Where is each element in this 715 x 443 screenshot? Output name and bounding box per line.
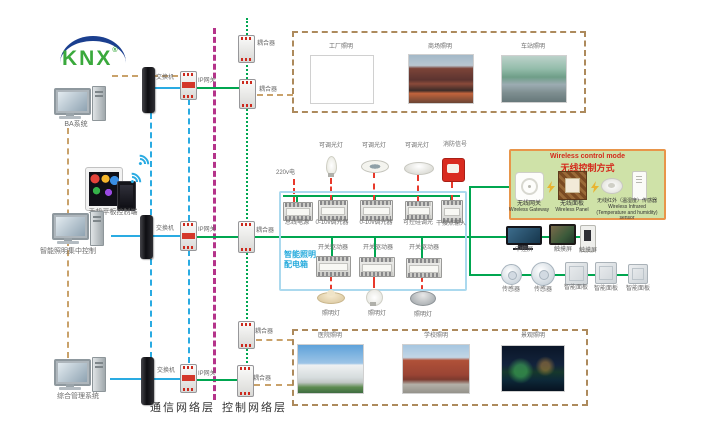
- device-label: 开关驱动器: [315, 245, 351, 251]
- touch-screen-label: 触摸屏: [549, 247, 577, 253]
- coupler-icon: [237, 365, 254, 397]
- coupler-icon: [238, 321, 255, 349]
- tan-link-to-bottom-apps-1: [256, 339, 293, 341]
- device-label: 干接点输入: [433, 221, 469, 227]
- wireless-panel-icon: [558, 171, 587, 200]
- bus-power-module-icon: [283, 202, 313, 221]
- lamp-label: 照明灯: [318, 311, 344, 317]
- dimmer-module-icon: [318, 200, 348, 221]
- wireless-sensor-wall-icon: [632, 171, 647, 200]
- pc-tower-icon: [92, 86, 106, 121]
- pc-tower-icon: [90, 211, 104, 246]
- smart-panel-label: 智能面板: [623, 286, 653, 292]
- device-label: 可控硅调光: [399, 220, 437, 226]
- switch-actuator-icon: [316, 256, 351, 277]
- landscape-photo: [501, 345, 565, 392]
- coupler-icon: [238, 221, 255, 253]
- school-photo: [402, 344, 470, 394]
- green-bus-top-row: [196, 87, 240, 89]
- knx-lighting-system-diagram: KNX® BA系统 手机平板控制端 智能照明集中控制 综合管理系统 交换机 交换…: [0, 0, 715, 443]
- green-bus-bottom-row: [196, 379, 239, 381]
- touch-screen-label: 触摸屏: [574, 248, 602, 254]
- app-label: 医院照明: [298, 333, 362, 339]
- smart-panel-icon: [595, 262, 617, 284]
- factory-photo: [310, 55, 374, 104]
- lamp-label: 照明灯: [364, 311, 390, 317]
- switch-actuator-icon: [406, 258, 442, 278]
- dimmable-downlight-icon: [361, 160, 389, 173]
- fire-alarm-icon: [442, 158, 465, 182]
- lightning-icon: [590, 181, 600, 193]
- ethernet-switch-icon: [140, 215, 153, 259]
- wireless-panel-label: 无线面板Wireless Panel: [551, 201, 593, 214]
- ip-gateway-icon: [180, 364, 197, 393]
- green-riser-right: [469, 186, 471, 276]
- wireless-gateway-icon: [515, 172, 544, 201]
- tan-link-to-top-apps: [257, 94, 293, 96]
- tan-link-to-bottom-apps-2: [254, 384, 293, 386]
- ip-gateway-label: IP网关: [198, 78, 216, 84]
- coupler-icon: [238, 35, 255, 63]
- device-label: 0-10v调光器: [311, 220, 353, 226]
- green-branch-wireless: [469, 186, 512, 188]
- station-photo: [501, 55, 567, 103]
- ethernet-switch-icon: [141, 357, 154, 405]
- lightning-icon: [546, 181, 556, 193]
- app-label: 工厂照明: [310, 44, 372, 50]
- coupler-label: 耦合器: [255, 329, 273, 335]
- wireless-gateway-label: 无线网关Wireless Gateway: [508, 201, 550, 214]
- metal-lamp-icon: [410, 291, 436, 306]
- smart-panel-label: 智能面板: [591, 286, 621, 292]
- central-screen-icon: [506, 226, 542, 245]
- dimmer-module-icon: [360, 200, 393, 221]
- monitor-icon: [54, 88, 91, 115]
- monitor-icon: [54, 359, 91, 386]
- device-label: 开关驱动器: [360, 245, 396, 251]
- load-label: 可调光灯: [402, 143, 432, 149]
- coupler-label: 耦合器: [256, 228, 274, 234]
- app-label: 景观照明: [503, 333, 563, 339]
- pc1-label: BA系统: [46, 121, 106, 128]
- coupler-label: 耦合器: [253, 376, 271, 382]
- wireless-title-en: Wireless control mode: [511, 153, 664, 160]
- blue-switch-link-lower: [150, 259, 152, 358]
- dimmable-ceiling-lamp-icon: [404, 162, 434, 175]
- blue-link-top-row: [155, 87, 182, 89]
- distribution-box-label: 智能照明配电箱: [284, 250, 316, 269]
- ip-gateway-label: IP网关: [198, 227, 216, 233]
- registered-mark-icon: ®: [112, 47, 119, 54]
- switch-label: 交换机: [156, 226, 174, 232]
- hospital-photo: [297, 344, 364, 394]
- wireless-sensor-label: 无线红外（温湿度）传感器Wireless Infrared (Temperatu…: [594, 199, 660, 222]
- pc2-label: 智能照明集中控制: [23, 248, 113, 255]
- switch-actuator-icon: [359, 257, 395, 277]
- power-input-label: 220v电: [276, 170, 295, 176]
- knx-logo-text: KNX®: [62, 47, 120, 71]
- smart-panel-icon: [565, 262, 588, 285]
- switch-label: 交换机: [156, 75, 174, 81]
- sensor-label: 传感器: [531, 287, 555, 293]
- thyristor-dimmer-icon: [405, 201, 433, 220]
- communication-layer-label: 通信网络层: [150, 399, 215, 415]
- control-layer-label: 控制网络层: [222, 399, 287, 415]
- app-label: 学校照明: [404, 333, 468, 339]
- blue-gateway-link-lower: [188, 250, 190, 363]
- ip-gateway-label: IP网关: [198, 371, 216, 377]
- app-label: 车站照明: [502, 44, 564, 50]
- fire-signal-label: 消防信号: [441, 142, 469, 148]
- monitor-icon: [52, 213, 89, 240]
- sensor-label: 传感器: [499, 287, 523, 293]
- pc-tower-icon: [92, 357, 106, 392]
- wireless-sensor-dome-icon: [601, 178, 623, 194]
- ethernet-switch-icon: [142, 67, 155, 113]
- coupler-label: 耦合器: [259, 87, 277, 93]
- smart-panel-icon: [628, 264, 648, 284]
- switch-label: 交换机: [157, 368, 175, 374]
- load-label: 可调光灯: [317, 143, 345, 149]
- sensor-icon: [531, 262, 555, 286]
- ip-gateway-icon: [180, 221, 197, 251]
- mall-photo: [408, 54, 474, 104]
- coupler-icon: [239, 79, 256, 109]
- app-label: 商场照明: [409, 44, 471, 50]
- central-screen-label: 中控屏: [509, 247, 539, 253]
- ip-gateway-icon: [180, 71, 197, 100]
- coupler-label: 耦合器: [257, 41, 275, 47]
- load-label: 可调光灯: [360, 143, 388, 149]
- lamp-label: 照明灯: [410, 312, 436, 318]
- pc3-label: 综合管理系统: [48, 393, 108, 400]
- blue-gateway-link-upper: [188, 99, 190, 221]
- sensor-icon: [501, 264, 522, 285]
- device-label: 开关驱动器: [406, 245, 442, 251]
- device-label: 0-10v调光器: [355, 220, 397, 226]
- ceiling-lamp-icon: [317, 292, 345, 304]
- smart-panel-label: 智能面板: [561, 285, 591, 291]
- dry-contact-input-icon: [441, 200, 463, 223]
- touch-screen-icon: [549, 224, 576, 245]
